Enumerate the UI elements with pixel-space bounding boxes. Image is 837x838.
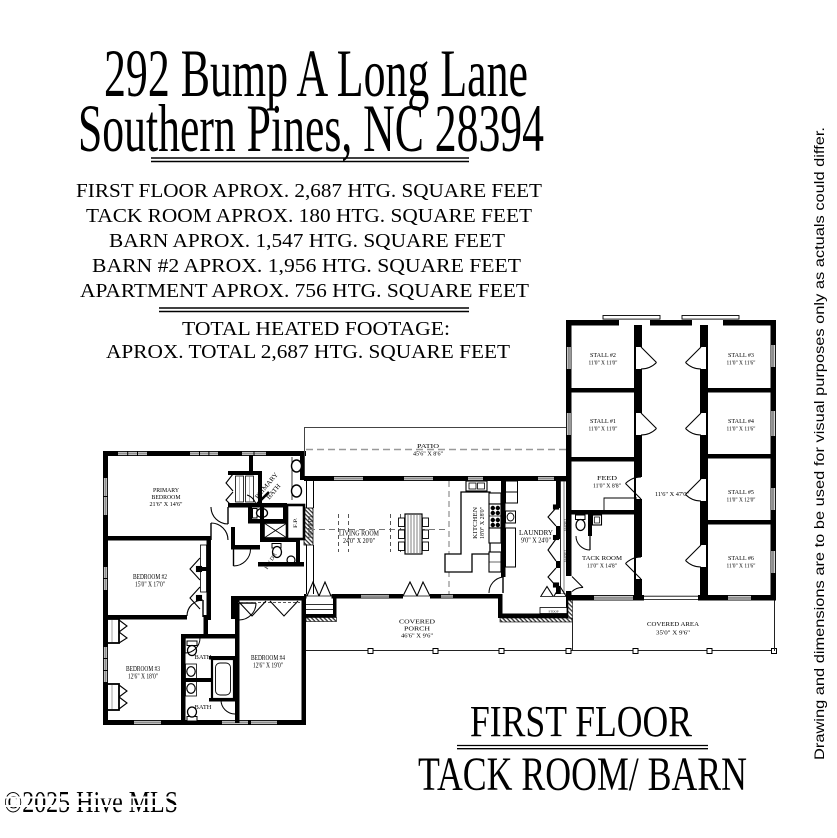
svg-text:BARN APROX. 1,547 HTG. SQUARE: BARN APROX. 1,547 HTG. SQUARE FEET: [109, 230, 505, 252]
svg-text:TACK ROOM/ BARN: TACK ROOM/ BARN: [418, 748, 747, 801]
svg-text:STALL #5: STALL #5: [728, 489, 754, 496]
svg-text:STALL #2: STALL #2: [590, 352, 616, 359]
svg-text:11'0" X 11'0": 11'0" X 11'0": [589, 360, 618, 367]
svg-text:18'0" X 28'0": 18'0" X 28'0": [479, 507, 486, 539]
svg-text:COVERED AREA: COVERED AREA: [647, 621, 699, 628]
svg-text:24'0" X 20'0": 24'0" X 20'0": [343, 538, 375, 545]
svg-text:BEDROOM: BEDROOM: [152, 494, 181, 501]
svg-text:12'6" X 19'0": 12'6" X 19'0": [253, 663, 283, 670]
svg-text:HEARTH: HEARTH: [308, 516, 314, 538]
svg-text:F.P.: F.P.: [293, 517, 299, 528]
svg-text:35'0" X 9'6": 35'0" X 9'6": [656, 630, 690, 637]
svg-text:BEDROOM #3: BEDROOM #3: [126, 666, 160, 673]
svg-text:11'0" X 8'8": 11'0" X 8'8": [593, 483, 621, 490]
svg-text:21'6" X 14'6": 21'6" X 14'6": [150, 501, 183, 508]
svg-text:11'0" X 11'6": 11'0" X 11'6": [727, 426, 756, 433]
svg-text:FIRST FLOOR: FIRST FLOOR: [470, 697, 693, 746]
svg-text:FIRST FLOOR APROX. 2,687 HTG.: FIRST FLOOR APROX. 2,687 HTG. SQUARE FEE…: [76, 180, 542, 202]
svg-text:LIVING ROOM: LIVING ROOM: [339, 531, 379, 538]
svg-text:STALL #6: STALL #6: [728, 555, 755, 562]
svg-text:Southern Pines, NC 28394: Southern Pines, NC 28394: [78, 90, 544, 166]
svg-text:LAUNDRY: LAUNDRY: [519, 530, 553, 537]
svg-text:TOTAL HEATED FOOTAGE:: TOTAL HEATED FOOTAGE:: [182, 318, 450, 340]
svg-text:TACK ROOM APROX. 180 HTG. SQUA: TACK ROOM APROX. 180 HTG. SQUARE FEET: [86, 205, 532, 227]
svg-text:APARTMENT APROX. 756 HTG. SQUA: APARTMENT APROX. 756 HTG. SQUARE FEET: [80, 280, 529, 302]
svg-text:BARN #2 APROX. 1,956 HTG. SQUA: BARN #2 APROX. 1,956 HTG. SQUARE FEET: [92, 255, 521, 277]
svg-text:11'0" X 11'0": 11'0" X 11'0": [589, 426, 618, 433]
svg-text:BEDROOM #2: BEDROOM #2: [133, 574, 167, 581]
svg-text:APROX. TOTAL 2,687 HTG. SQUARE: APROX. TOTAL 2,687 HTG. SQUARE FEET: [106, 341, 510, 363]
svg-text:©2025 Hive MLS: ©2025 Hive MLS: [4, 784, 178, 819]
svg-text:PATIO: PATIO: [417, 443, 439, 450]
svg-text:STALL #3: STALL #3: [728, 352, 754, 359]
svg-text:9'0" X 24'0": 9'0" X 24'0": [521, 538, 551, 545]
svg-text:Drawing and dimensions are to: Drawing and dimensions are to be used fo…: [812, 127, 827, 760]
svg-text:12'6" X 18'0": 12'6" X 18'0": [128, 674, 158, 681]
svg-text:TACK ROOM: TACK ROOM: [582, 555, 622, 562]
svg-text:11'0" X 11'6": 11'0" X 11'6": [727, 563, 756, 570]
svg-text:STALL #1: STALL #1: [590, 418, 616, 425]
svg-text:11'0" X 14'8": 11'0" X 14'8": [587, 563, 617, 570]
svg-text:STOOP: STOOP: [548, 610, 558, 614]
svg-text:11'6" X 47'0": 11'6" X 47'0": [655, 491, 689, 498]
svg-text:PORCH: PORCH: [404, 626, 430, 633]
svg-text:FEED: FEED: [597, 475, 617, 482]
svg-text:PRIMARY: PRIMARY: [153, 487, 179, 494]
svg-text:45'6" X 8'6": 45'6" X 8'6": [413, 451, 443, 458]
svg-text:COVERED: COVERED: [399, 619, 435, 626]
svg-text:BATH: BATH: [195, 704, 212, 711]
svg-text:11'0" X 12'0": 11'0" X 12'0": [727, 497, 756, 504]
svg-text:11'0" X 11'6": 11'0" X 11'6": [727, 360, 756, 367]
svg-text:KITCHEN: KITCHEN: [472, 507, 479, 539]
svg-text:BEDROOM #4: BEDROOM #4: [251, 655, 285, 662]
svg-text:46'6" X 9'6": 46'6" X 9'6": [401, 633, 433, 640]
svg-text:STALL #4: STALL #4: [728, 418, 755, 425]
svg-text:15'0" X 17'0": 15'0" X 17'0": [135, 582, 165, 589]
